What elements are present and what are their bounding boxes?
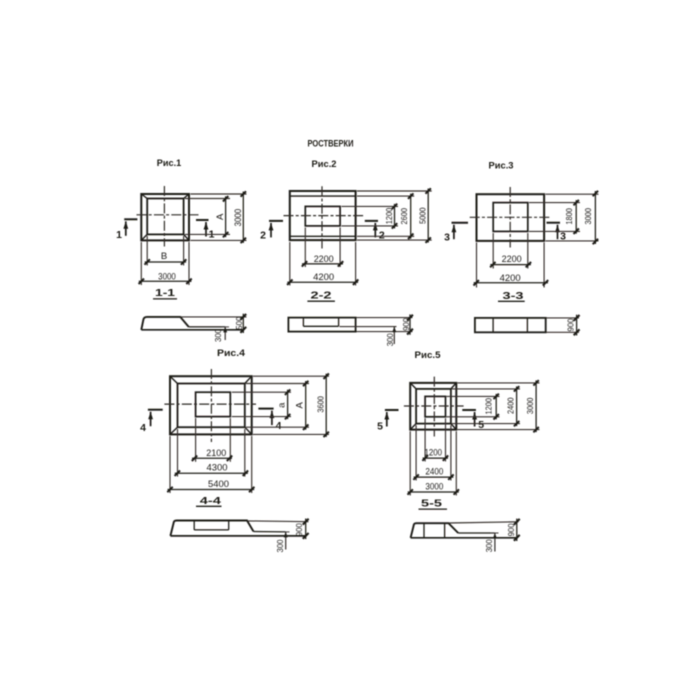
svg-text:300: 300 [485, 539, 494, 553]
svg-text:2: 2 [260, 230, 266, 242]
svg-text:900: 900 [295, 523, 304, 537]
svg-text:3600: 3600 [316, 396, 325, 413]
svg-text:3000: 3000 [158, 271, 176, 281]
svg-text:2400: 2400 [425, 467, 443, 477]
svg-text:1: 1 [116, 229, 122, 241]
svg-text:1800: 1800 [565, 208, 574, 225]
svg-text:3-3: 3-3 [503, 290, 524, 302]
svg-text:3: 3 [444, 231, 450, 243]
svg-text:А: А [295, 401, 306, 408]
svg-text:4200: 4200 [313, 272, 334, 282]
svg-text:4: 4 [140, 422, 146, 434]
svg-text:5400: 5400 [208, 479, 229, 489]
svg-text:3000: 3000 [584, 208, 593, 225]
svg-text:Рис.5: Рис.5 [415, 350, 442, 361]
svg-text:4: 4 [276, 420, 282, 432]
svg-text:2400: 2400 [507, 397, 516, 414]
svg-text:1200: 1200 [484, 397, 493, 414]
svg-text:3000: 3000 [425, 482, 443, 492]
svg-text:5000: 5000 [419, 207, 428, 224]
svg-text:2600: 2600 [400, 208, 409, 225]
svg-text:4300: 4300 [207, 463, 228, 473]
svg-text:2200: 2200 [502, 254, 522, 264]
svg-text:900: 900 [507, 523, 516, 537]
svg-text:Рис.1: Рис.1 [157, 158, 182, 169]
svg-text:1-1: 1-1 [155, 287, 175, 299]
svg-text:Рис.2: Рис.2 [312, 159, 337, 170]
svg-text:Рис.4: Рис.4 [217, 348, 246, 359]
svg-text:300: 300 [214, 328, 223, 342]
svg-text:Рис.3: Рис.3 [489, 160, 514, 171]
svg-text:3000: 3000 [526, 397, 535, 414]
svg-text:2-2: 2-2 [311, 290, 332, 302]
svg-text:а: а [277, 402, 288, 408]
svg-text:2100: 2100 [206, 448, 226, 458]
svg-text:4-4: 4-4 [200, 495, 221, 507]
svg-text:300: 300 [386, 333, 395, 347]
svg-text:1200: 1200 [425, 447, 443, 457]
svg-text:5: 5 [377, 420, 383, 432]
svg-text:300: 300 [276, 539, 285, 553]
svg-text:5-5: 5-5 [421, 497, 442, 509]
svg-text:2200: 2200 [314, 254, 334, 264]
svg-text:А: А [215, 213, 226, 220]
svg-text:1200: 1200 [385, 207, 394, 224]
svg-text:900: 900 [402, 317, 411, 331]
svg-text:4200: 4200 [500, 273, 521, 283]
svg-text:900: 900 [566, 318, 575, 332]
svg-text:3000: 3000 [233, 209, 243, 227]
svg-text:РОСТВЕРКИ: РОСТВЕРКИ [308, 139, 354, 150]
svg-text:500: 500 [235, 316, 244, 330]
svg-text:В: В [161, 251, 167, 262]
